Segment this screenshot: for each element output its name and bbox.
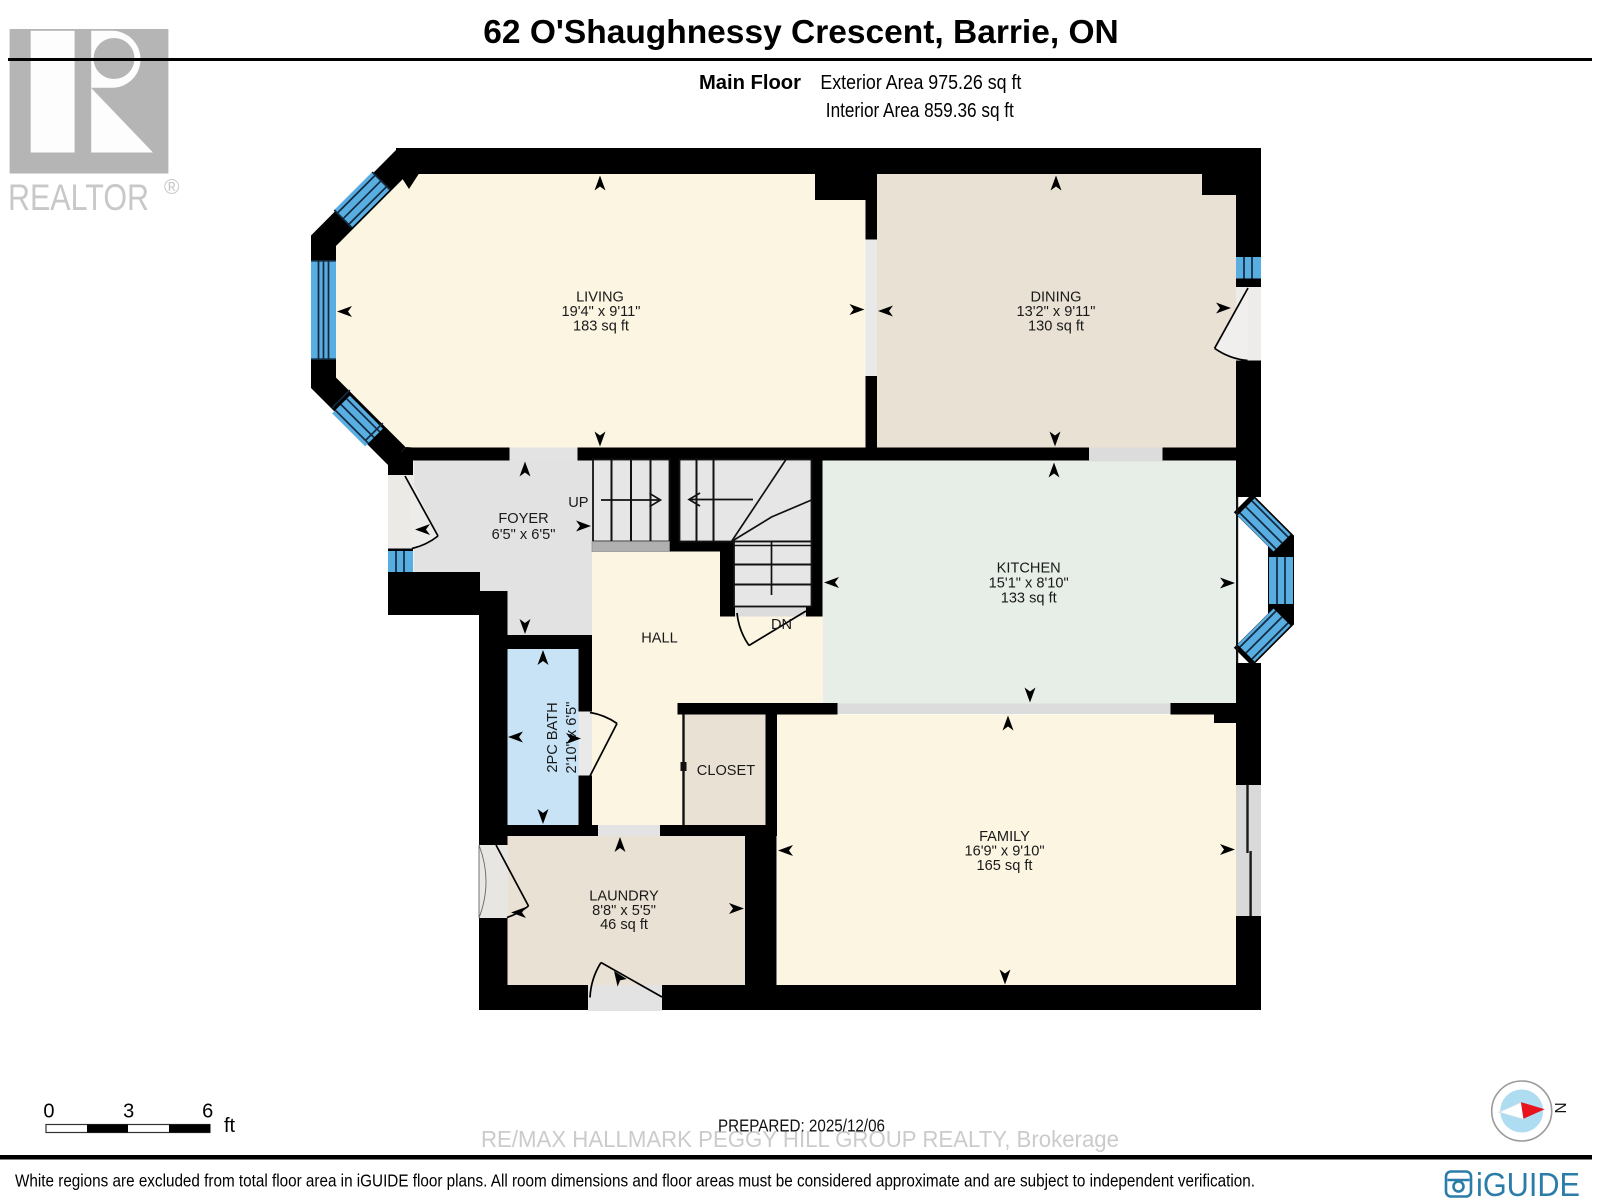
svg-text:15'1" x 8'10": 15'1" x 8'10": [989, 576, 1069, 592]
svg-text:iGUIDE: iGUIDE: [1476, 1167, 1580, 1198]
svg-text:0: 0: [43, 1101, 54, 1123]
svg-text:CLOSET: CLOSET: [697, 763, 755, 779]
svg-text:183 sq ft: 183 sq ft: [573, 319, 629, 335]
svg-text:REALTOR: REALTOR: [8, 177, 149, 218]
svg-text:2PC BATH: 2PC BATH: [545, 702, 561, 772]
svg-text:165 sq ft: 165 sq ft: [977, 858, 1033, 874]
svg-text:Interior Area 859.36 sq ft: Interior Area 859.36 sq ft: [826, 100, 1014, 122]
svg-text:62 O'Shaughnessy Crescent, Bar: 62 O'Shaughnessy Crescent, Barrie, ON: [483, 14, 1118, 51]
svg-text:46 sq ft: 46 sq ft: [600, 917, 648, 933]
svg-text:FOYER: FOYER: [498, 511, 548, 527]
svg-text:KITCHEN: KITCHEN: [997, 561, 1061, 577]
svg-text:6: 6: [202, 1101, 213, 1123]
svg-text:UP: UP: [568, 495, 588, 511]
svg-text:®: ®: [164, 176, 180, 199]
svg-text:133 sq ft: 133 sq ft: [1001, 591, 1057, 607]
svg-text:2'10" x 6'5": 2'10" x 6'5": [564, 702, 580, 774]
svg-text:Exterior Area 975.26 sq ft: Exterior Area 975.26 sq ft: [820, 72, 1021, 94]
svg-text:HALL: HALL: [641, 631, 678, 647]
svg-text:130 sq ft: 130 sq ft: [1028, 319, 1084, 335]
svg-text:White regions are excluded fro: White regions are excluded from total fl…: [15, 1171, 1255, 1191]
svg-text:6'5" x 6'5": 6'5" x 6'5": [492, 527, 556, 543]
svg-text:PREPARED: 2025/12/06: PREPARED: 2025/12/06: [718, 1116, 885, 1136]
svg-text:ft: ft: [224, 1115, 236, 1137]
svg-text:DN: DN: [771, 617, 792, 633]
svg-text:Main Floor: Main Floor: [699, 72, 801, 94]
svg-text:3: 3: [123, 1101, 134, 1123]
svg-text:N: N: [1551, 1102, 1568, 1113]
